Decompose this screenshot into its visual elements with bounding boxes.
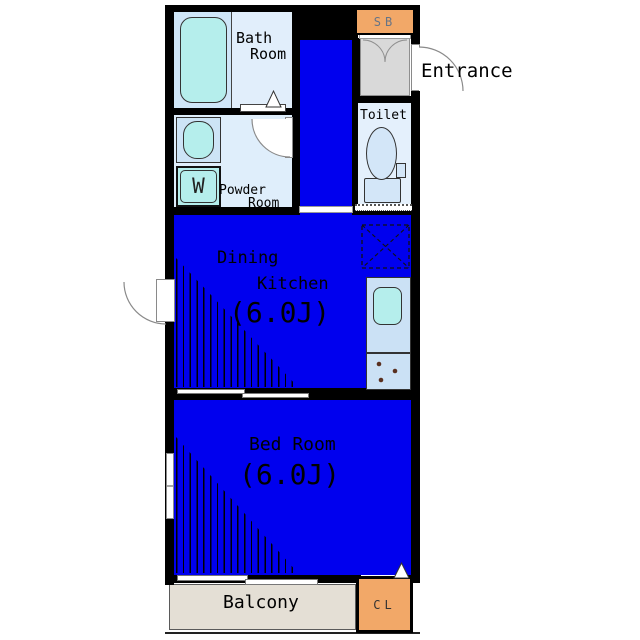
hall-dk-threshold bbox=[299, 206, 353, 213]
shoe-box-label: SB bbox=[374, 16, 396, 28]
washing-machine: W bbox=[176, 166, 221, 207]
gas-stove bbox=[366, 353, 411, 390]
entrance-label: Entrance bbox=[421, 62, 513, 81]
bedroom-balcony-sliding-door-2 bbox=[245, 579, 318, 585]
wall-right bbox=[411, 5, 420, 583]
washing-machine-inner bbox=[180, 170, 217, 203]
bedroom-balcony-sliding-door-1 bbox=[177, 575, 248, 581]
bath-room-label-line2: Room bbox=[250, 47, 286, 62]
dk-side-door-panel bbox=[156, 279, 175, 322]
floor-plan: W SB CL bbox=[0, 0, 640, 640]
entrance-door-panel bbox=[411, 44, 420, 91]
dk-label-line2: Kitchen bbox=[257, 276, 329, 293]
wall-hall-toilet bbox=[352, 98, 358, 207]
bed-room-size-label: (6.0J) bbox=[239, 461, 340, 489]
toilet-tank bbox=[364, 178, 401, 203]
wall-hall-entrance bbox=[352, 38, 360, 98]
toilet-threshold bbox=[355, 204, 412, 211]
kitchen-sink bbox=[373, 287, 402, 325]
bath-room-label-line1: Bath bbox=[236, 31, 272, 46]
toilet-label: Toilet bbox=[360, 109, 407, 122]
dk-label-line1: Dining bbox=[217, 250, 278, 267]
bath-divider-line bbox=[231, 12, 232, 108]
closet-label: CL bbox=[373, 599, 395, 611]
powder-room-label-line2: Room bbox=[248, 197, 279, 210]
wall-top-middle-block bbox=[293, 12, 358, 40]
entrance-area bbox=[360, 38, 410, 96]
wall-powder-dk bbox=[165, 207, 300, 215]
closet: CL bbox=[356, 576, 413, 633]
balcony-label: Balcony bbox=[223, 594, 299, 612]
shoe-box: SB bbox=[355, 8, 415, 35]
toilet-bowl bbox=[366, 127, 397, 180]
washbasin-bowl bbox=[183, 121, 214, 159]
bath-door-threshold bbox=[240, 104, 286, 112]
hallway-area bbox=[300, 40, 352, 215]
dk-bedroom-sliding-door-1 bbox=[177, 389, 245, 394]
bathtub bbox=[180, 17, 227, 103]
dk-bedroom-sliding-door-2 bbox=[242, 393, 309, 398]
dk-size-label: (6.0J) bbox=[229, 299, 330, 327]
toilet-handle bbox=[396, 163, 406, 178]
wall-entrance-toilet bbox=[355, 96, 412, 103]
wall-bath-powder-right bbox=[292, 12, 300, 215]
bedroom-window bbox=[166, 453, 174, 519]
powder-door-panel bbox=[285, 117, 293, 158]
bed-room-label: Bed Room bbox=[249, 436, 336, 454]
